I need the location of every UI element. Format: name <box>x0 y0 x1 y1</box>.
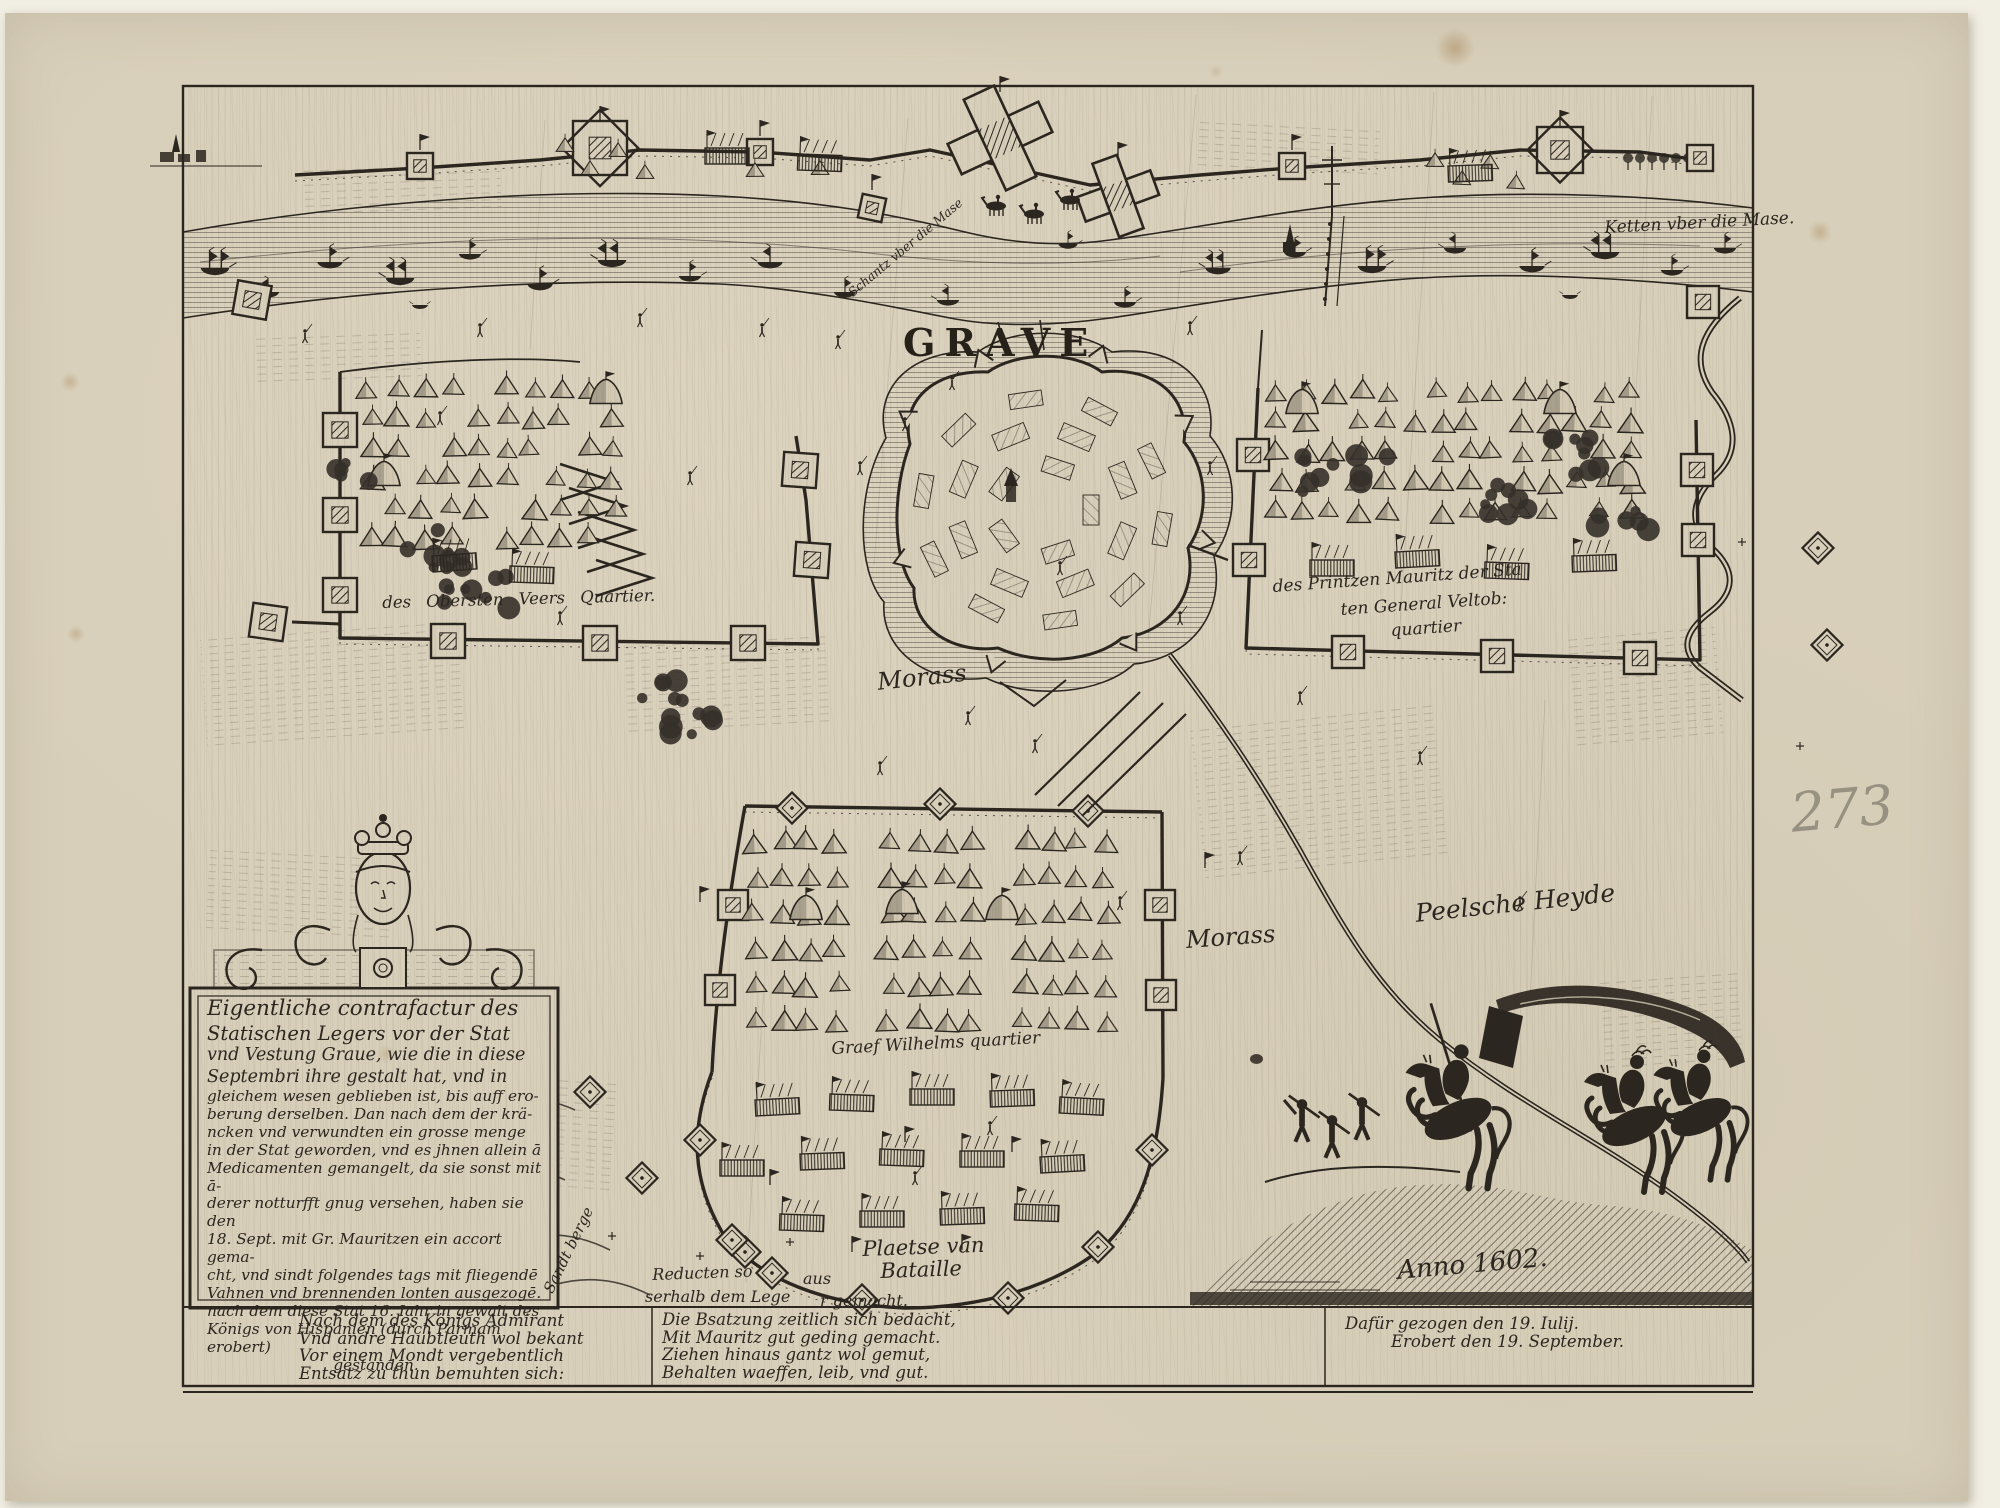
verse-line: Die Bsatzung zeitlich sich bedacht, <box>662 1311 956 1329</box>
scanned-engraving: GRAVE Ketten vber die Mase. Schantz vber… <box>0 0 2000 1508</box>
cartouche-line: Eigentliche contrafactur des <box>207 996 545 1022</box>
verse-line: Behalten waeffen, leib, vnd gut. <box>662 1364 956 1382</box>
verse-line: Dafür gezogen den 19. Iulij. <box>1345 1315 1624 1333</box>
verse-right: Dafür gezogen den 19. Iulij.Erobert den … <box>1345 1315 1624 1350</box>
verse-line: Mit Mauritz gut geding gemacht. <box>662 1329 956 1347</box>
town-name-label: GRAVE <box>903 320 1097 365</box>
cartouche-line: Vahnen vnd brennenden lonten ausgezogē. <box>207 1285 545 1303</box>
handwritten-number: 273 <box>1788 773 1896 845</box>
redoubt-note-1b: aus <box>803 1269 831 1288</box>
redoubt-note-2a: serhalb dem Lege <box>645 1287 790 1306</box>
verse-line: Entsatz zu thun bemuhten sich: <box>299 1365 584 1383</box>
cartouche-line: cht, vnd sindt folgendes tags mit fliege… <box>207 1267 545 1285</box>
cartouche-line: Septembri ihre gestalt hat, vnd in <box>207 1067 545 1089</box>
verse-left: Nach dem des Königs AdmirantVnd andre Ha… <box>299 1312 584 1382</box>
verse-line: Vnd andre Haubtleuth wol bekant <box>299 1330 584 1348</box>
cartouche-line: in der Stat geworden, vnd es jhnen allei… <box>207 1142 545 1160</box>
cartouche-line: 18. Sept. mit Gr. Mauritzen ein accort g… <box>207 1231 545 1267</box>
verse-line: Vor einem Mondt vergebentlich <box>299 1347 584 1365</box>
cartouche-line: berung derselben. Dan nach dem der krä- <box>207 1106 545 1124</box>
verse-line: Nach dem des Königs Admirant <box>299 1312 584 1330</box>
cartouche-line: derer notturfft gnug versehen, haben sie… <box>207 1195 545 1231</box>
cartouche-line: Medicamenten gemangelt, da sie sonst mit… <box>207 1160 545 1196</box>
verse-line: Erobert den 19. September. <box>1391 1333 1624 1351</box>
battlefield-label-2: Bataille <box>880 1256 962 1283</box>
cartouche-line: gleichem wesen geblieben ist, bis auff e… <box>207 1088 545 1106</box>
cartouche-line: Statischen Legers vor der Stat <box>207 1022 545 1045</box>
cartouche-line: ncken vnd verwundten ein grosse menge <box>207 1124 545 1142</box>
redoubt-note-2b: r gemacht. <box>820 1291 908 1310</box>
verse-middle: Die Bsatzung zeitlich sich bedacht,Mit M… <box>662 1311 956 1381</box>
redoubt-note-1a: Reducten so <box>652 1262 753 1284</box>
verse-line: Ziehen hinaus gantz wol gemut, <box>662 1346 956 1364</box>
cartouche-line: vnd Vestung Graue, wie die in diese <box>207 1045 545 1067</box>
